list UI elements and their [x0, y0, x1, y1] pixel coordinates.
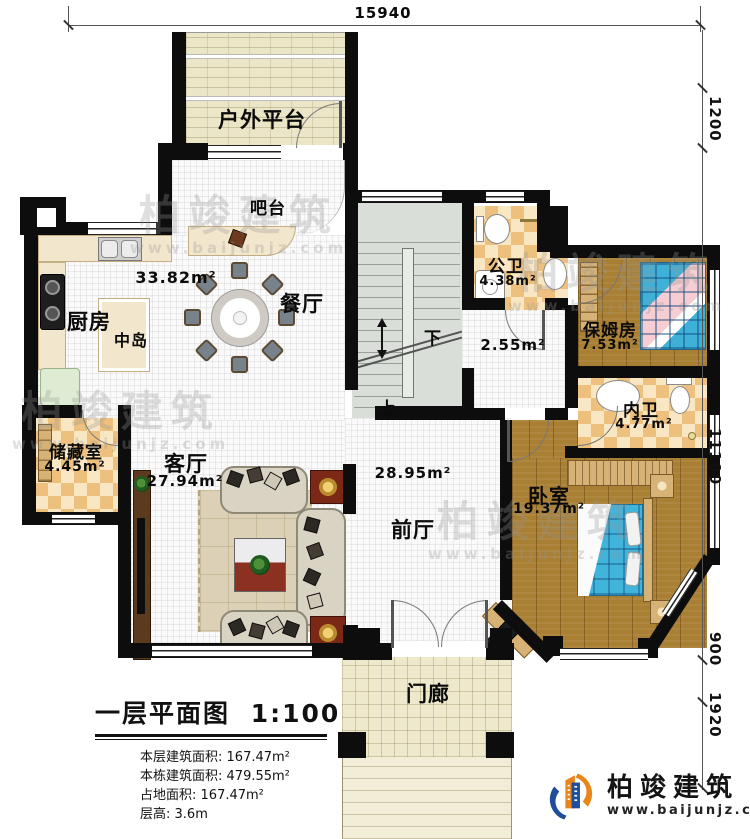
dimension-label-top: 15940: [354, 4, 411, 22]
wall: [565, 372, 578, 408]
room-label-bar: 吧台: [250, 194, 286, 219]
porch-column: [358, 628, 380, 650]
area-label-foyer: 28.95m²: [375, 464, 452, 482]
brand-logo: 柏竣建筑 www.baijunjz.com: [543, 768, 750, 824]
door-leaf: [391, 600, 394, 648]
stair-arrow-down-icon: [377, 350, 387, 359]
wall: [565, 448, 707, 458]
wall: [462, 408, 505, 420]
title-block: 一层平面图 1:100 本层建筑面积: 167.47m² 本栋建筑面积: 479…: [95, 694, 385, 824]
watermark: 柏竣建筑 www.baijunjz.com: [12, 388, 229, 454]
watermark-url: www.baijunjz.com: [130, 240, 347, 257]
room-label-porch: 门廊: [406, 678, 450, 708]
platform-rail-band: [186, 96, 345, 101]
door-leaf: [485, 600, 488, 648]
watermark-text: 柏竣建筑: [130, 192, 347, 240]
watermark: 柏竣建筑 www.baijunjz.com: [130, 192, 347, 258]
dining-table-center: [233, 311, 247, 325]
porch-column: [486, 732, 514, 758]
window: [362, 191, 442, 202]
stat-label: 本栋建筑面积:: [140, 769, 222, 784]
towel-bar: [520, 219, 538, 222]
stair-arrow-stem: [381, 326, 383, 352]
watermark-text: 柏竣建筑: [508, 250, 725, 298]
kitchen-sink-basin: [101, 240, 118, 258]
area-label-storage: 4.45m²: [44, 459, 105, 475]
watermark: 柏竣建筑 www.baijunjz.com: [508, 250, 725, 316]
window: [709, 478, 720, 548]
stat-label: 层高:: [140, 807, 170, 822]
wall: [474, 298, 505, 310]
area-label-public-bath: 4.38m²: [479, 274, 536, 289]
brand-logo-icon: [543, 768, 599, 824]
wall-notch: [37, 208, 56, 227]
dimension-ext-line: [700, 6, 701, 32]
dimension-line-right: [702, 30, 703, 790]
brand-url: www.baijunjz.com: [607, 803, 750, 818]
nightstand: [650, 474, 674, 498]
platform-rail-band: [186, 54, 345, 59]
stat-value: 167.47m²: [227, 750, 290, 765]
stat-value: 3.6m: [175, 807, 208, 822]
dimension-line-top: [68, 25, 700, 26]
dining-chair: [231, 356, 248, 373]
stair-label-down: 下: [424, 324, 442, 349]
tv: [137, 518, 145, 614]
stove-burner: [45, 280, 60, 295]
stat-row: 本层建筑面积: 167.47m²: [140, 748, 385, 767]
wall: [545, 408, 568, 420]
room-label-foyer: 前厅: [391, 514, 435, 544]
stat-value: 167.47m²: [201, 788, 264, 803]
door-leaf: [507, 420, 510, 462]
dimension-label-1920: 1920: [706, 692, 724, 738]
area-label-inner-bath: 4.77m²: [615, 417, 672, 432]
area-label-dining: 33.82m²: [135, 268, 216, 287]
toilet-bowl: [484, 214, 510, 244]
stat-row: 占地面积: 167.47m²: [140, 786, 385, 805]
window: [152, 645, 312, 657]
room-label-island: 中岛: [114, 327, 148, 351]
window: [52, 514, 95, 524]
floor-plan-canvas: 户外平台 吧台 33.82m² 餐厅 厨房 中岛 公卫 4.38m² 2.55m…: [0, 0, 750, 839]
wall: [172, 143, 208, 160]
wall: [343, 464, 356, 514]
stat-row: 层高: 3.6m: [140, 805, 385, 824]
toilet-tank: [476, 216, 484, 242]
door-leaf: [339, 101, 342, 148]
wall: [345, 32, 358, 143]
area-label-nanny: 7.53m²: [581, 338, 638, 353]
area-label-bedroom: 19.37m²: [513, 501, 585, 517]
title-underline: [95, 734, 327, 737]
room-label-platform: 户外平台: [218, 104, 306, 134]
porch-column: [490, 628, 512, 650]
plan-title: 一层平面图: [95, 699, 230, 728]
bay-window: [560, 648, 648, 660]
watermark-text: 柏竣建筑: [12, 388, 229, 436]
dimension-label-11100: 11100: [706, 428, 724, 485]
inner-toilet-bowl: [670, 386, 690, 414]
stat-label: 占地面积:: [140, 788, 196, 803]
stat-row: 本栋建筑面积: 479.55m²: [140, 767, 385, 786]
room-label-kitchen: 厨房: [67, 306, 111, 336]
dining-chair: [231, 262, 248, 279]
stair-label-up: 上: [379, 394, 397, 419]
window: [486, 191, 524, 202]
coffee-table-plant-icon: [250, 555, 270, 575]
watermark-url: www.baijunjz.com: [428, 546, 645, 563]
plan-scale: 1:100: [251, 699, 341, 728]
stat-label: 本层建筑面积:: [140, 750, 222, 765]
wall: [172, 32, 186, 143]
window: [208, 145, 281, 159]
stair-rail: [402, 248, 414, 398]
dimension-label-1200: 1200: [706, 96, 724, 142]
dimension-label-900: 900: [706, 632, 724, 666]
dimension-ext-line: [68, 6, 69, 32]
wall: [462, 203, 474, 310]
wall: [118, 524, 131, 658]
dining-chair: [184, 309, 201, 326]
side-table: [310, 470, 346, 504]
brand-name: 柏竣建筑: [607, 774, 750, 803]
room-label-dining: 餐厅: [280, 288, 324, 318]
area-label-living: 27.94m²: [147, 472, 224, 490]
watermark-url: www.baijunjz.com: [508, 298, 725, 315]
title-underline-thin: [95, 739, 327, 740]
area-label-corridor: 2.55m²: [480, 336, 545, 354]
wall: [565, 366, 707, 378]
floor-drain: [688, 432, 696, 440]
stat-value: 479.55m²: [227, 769, 290, 784]
stove-burner: [45, 306, 60, 321]
